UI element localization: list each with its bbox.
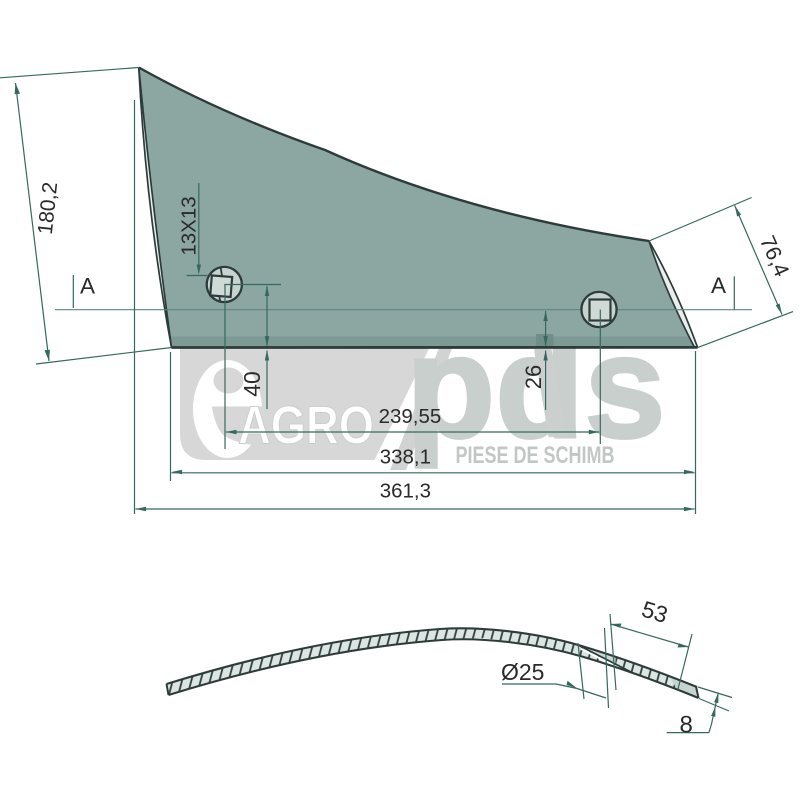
svg-text:180,2: 180,2 <box>34 181 62 236</box>
svg-text:53: 53 <box>639 596 671 628</box>
svg-text:A: A <box>80 274 95 299</box>
svg-text:AGRO: AGRO <box>238 397 374 456</box>
svg-text:239,55: 239,55 <box>379 405 442 428</box>
svg-text:A: A <box>711 273 726 298</box>
svg-text:Ø25: Ø25 <box>501 659 544 685</box>
svg-text:8: 8 <box>680 712 693 739</box>
svg-text:26: 26 <box>521 365 546 389</box>
svg-text:40: 40 <box>239 371 265 397</box>
svg-text:13X13: 13X13 <box>178 196 201 255</box>
svg-text:PIESE DE SCHIMB: PIESE DE SCHIMB <box>456 442 615 469</box>
svg-text:361,3: 361,3 <box>380 480 431 503</box>
svg-text:76,4: 76,4 <box>755 232 794 280</box>
svg-text:338,1: 338,1 <box>380 446 431 469</box>
